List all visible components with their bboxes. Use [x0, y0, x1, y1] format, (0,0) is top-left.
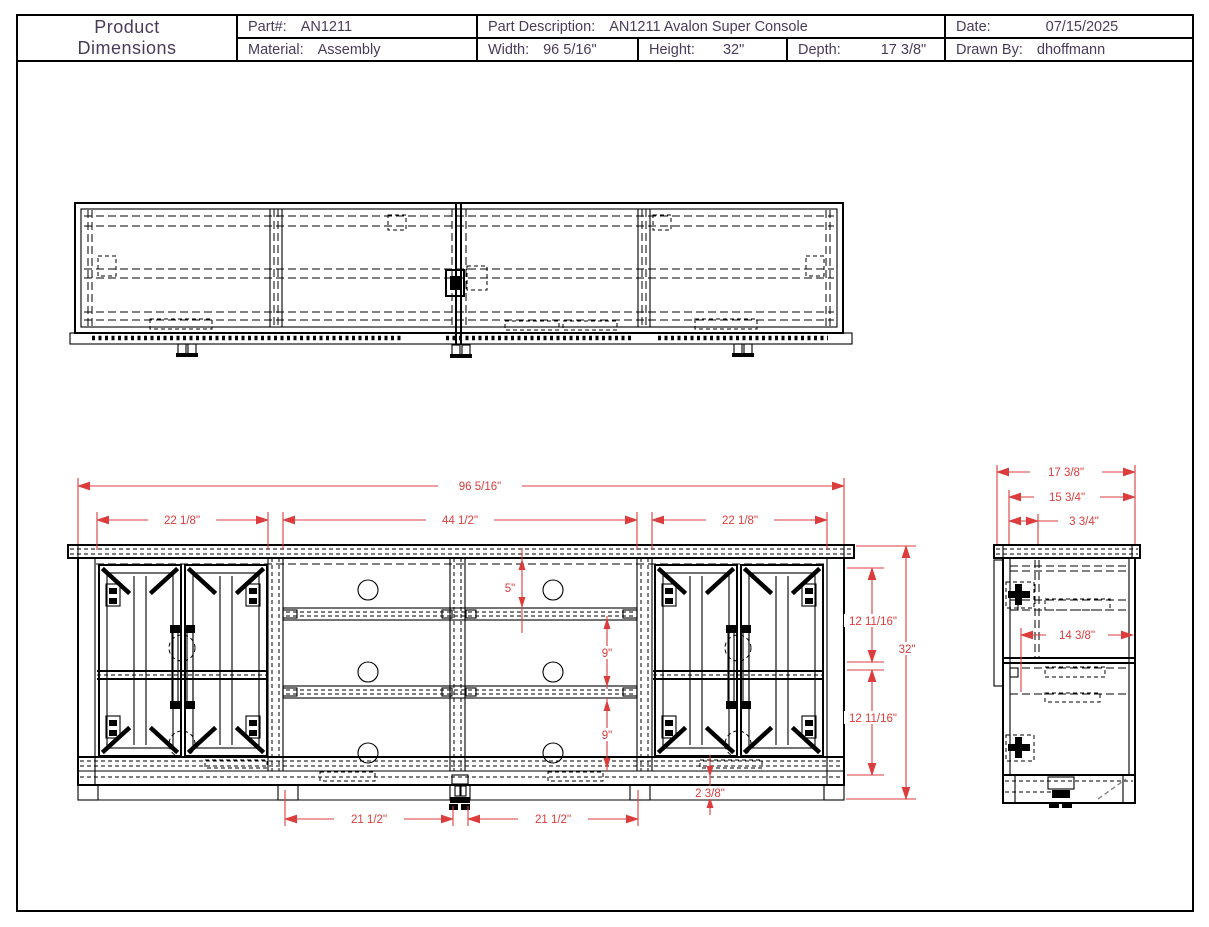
cable-hole — [543, 662, 563, 682]
front-left-doors — [97, 565, 268, 757]
front-middle-shelves — [283, 580, 637, 763]
dim-side-shelf-depth: 14 3/8" — [1059, 630, 1095, 642]
side-base — [1003, 775, 1135, 808]
dim-side-front-inset: 3 3/4" — [1069, 516, 1099, 528]
dim-front-center-section: 44 1/2" — [442, 515, 478, 527]
dim-front-leg-span-right: 21 1/2" — [535, 814, 571, 826]
cable-hole — [358, 662, 378, 682]
front-dimensions: 96 5/16" 22 1/8" 44 1/2" 22 1/8" 5" 9" — [78, 478, 920, 826]
dim-side-interior-depth: 15 3/4" — [1049, 492, 1085, 504]
cable-hole — [543, 580, 563, 600]
dim-front-upper-opening: 12 11/16" — [849, 616, 897, 628]
hinge-icon — [662, 584, 816, 738]
front-view — [68, 545, 854, 810]
front-right-doors — [653, 565, 824, 757]
dim-front-shelf-gap-1: 9" — [602, 648, 612, 660]
dim-front-left-section: 22 1/8" — [164, 515, 200, 527]
side-door-edge — [994, 560, 1003, 686]
cable-hole — [543, 743, 563, 763]
dim-front-overall: 96 5/16" — [459, 481, 501, 493]
dim-front-overall-height: 32" — [899, 644, 916, 656]
dim-front-shelf-gap-2: 9" — [602, 730, 612, 742]
dim-front-toe-kick: 2 3/8" — [695, 788, 725, 800]
leveling-foot — [449, 775, 470, 810]
hinge-icon — [106, 584, 260, 738]
cable-hole — [358, 743, 378, 763]
dim-front-top-opening: 5" — [505, 583, 515, 595]
dim-side-overall-depth: 17 3/8" — [1048, 467, 1084, 479]
cable-hole — [358, 580, 378, 600]
dim-front-lower-opening: 12 11/16" — [849, 713, 897, 725]
drawing-sheet: Product Dimensions Part#: AN1211 Materia… — [0, 0, 1209, 927]
top-view-feet — [176, 344, 754, 358]
drawing-canvas: 96 5/16" 22 1/8" 44 1/2" 22 1/8" 5" 9" — [0, 0, 1209, 927]
top-view — [70, 203, 852, 358]
dim-front-leg-span-left: 21 1/2" — [351, 814, 387, 826]
side-view — [994, 545, 1140, 808]
dim-front-right-section: 22 1/8" — [722, 515, 758, 527]
